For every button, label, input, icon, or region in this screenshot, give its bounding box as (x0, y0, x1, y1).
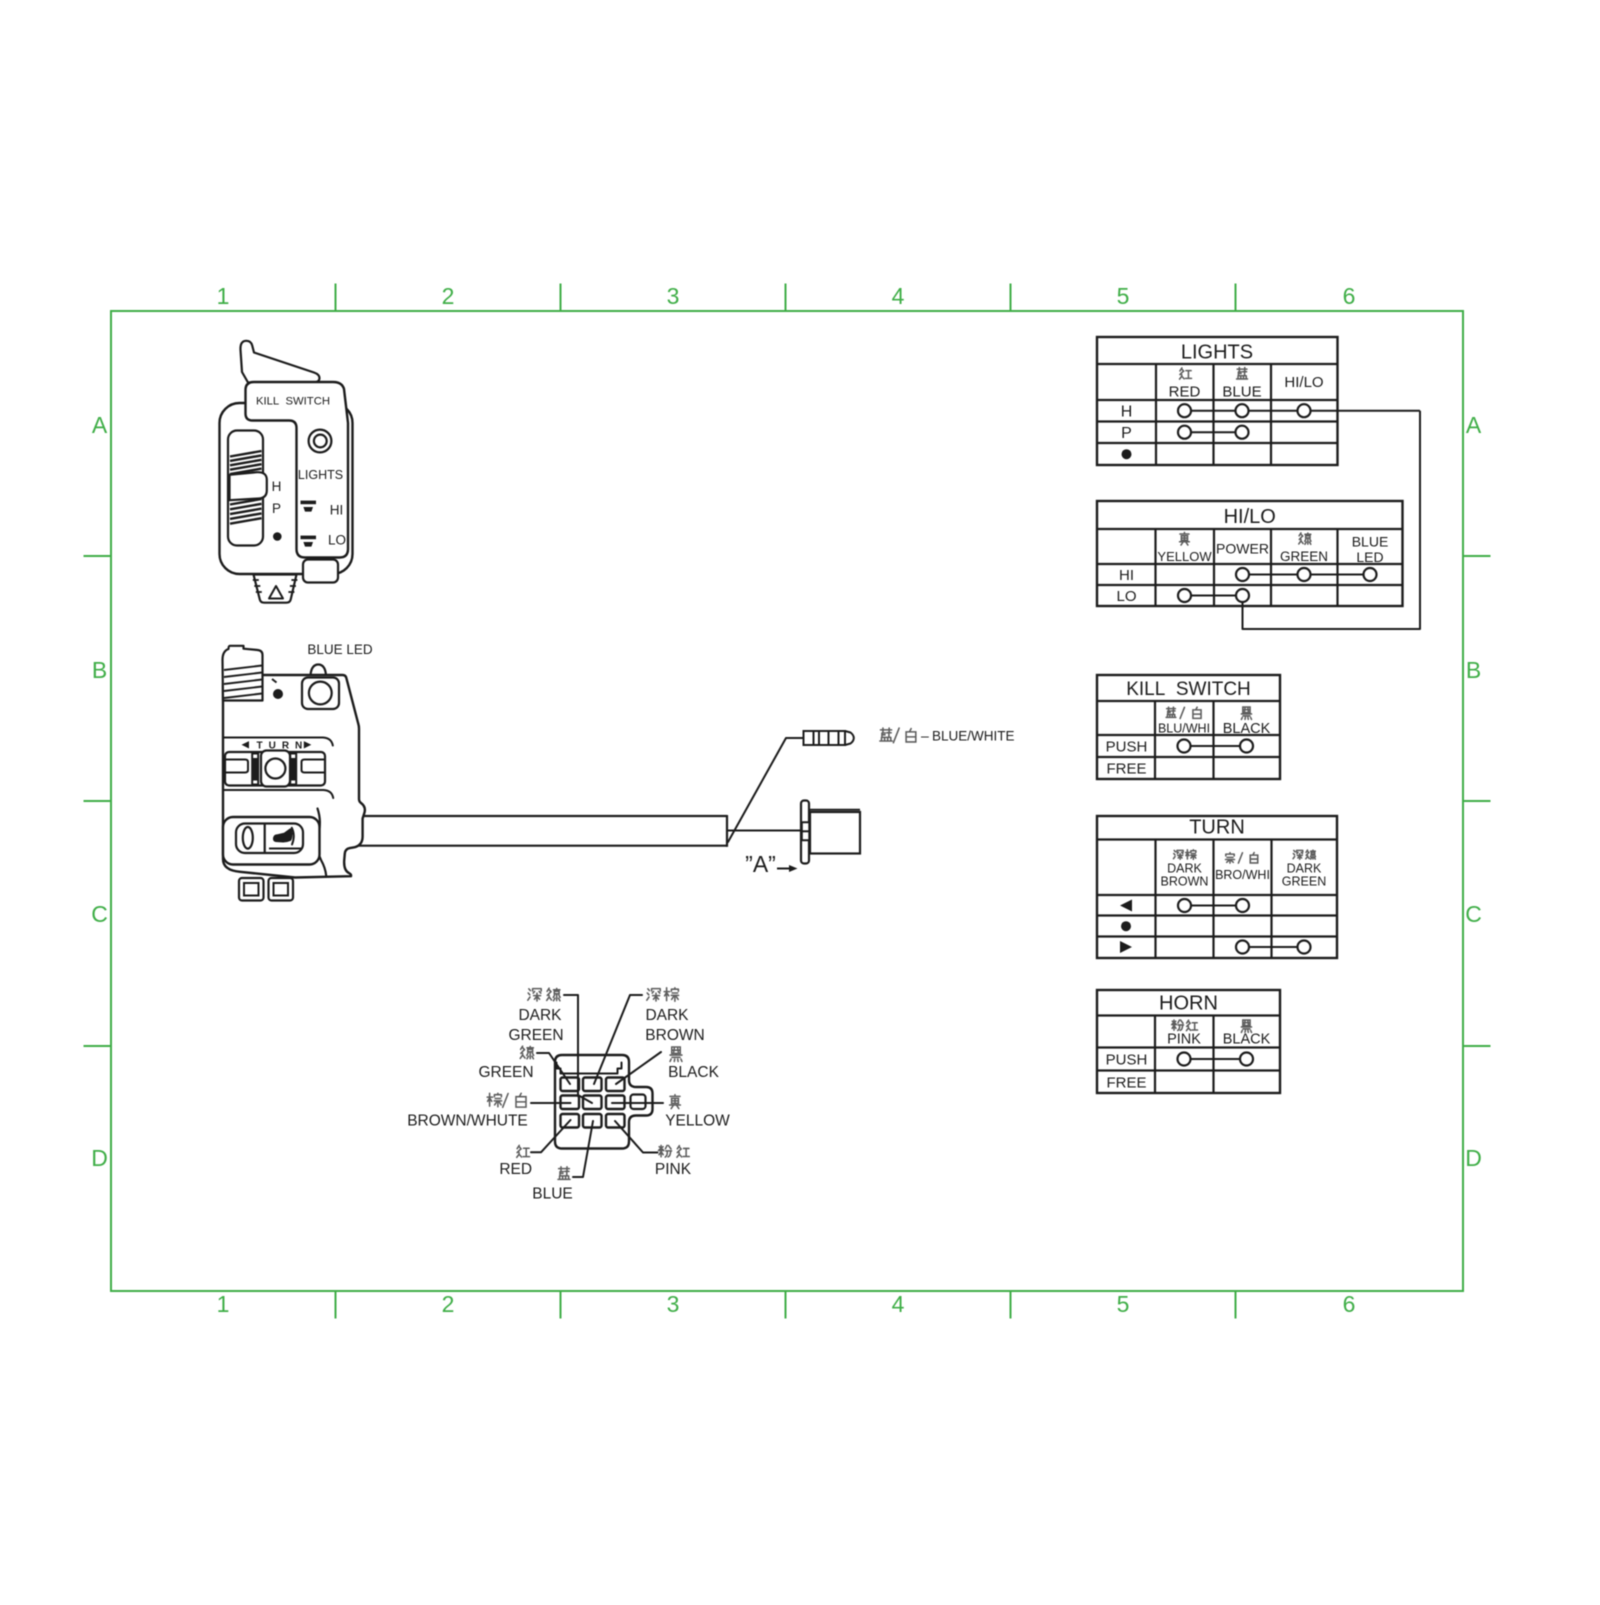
svg-text:”A”: ”A” (745, 851, 776, 877)
svg-text:BLUE: BLUE (1222, 384, 1261, 401)
svg-text:LED: LED (1356, 549, 1383, 565)
svg-text:HI/LO: HI/LO (1224, 506, 1276, 528)
svg-text:BLACK: BLACK (1223, 1032, 1271, 1048)
svg-text:B: B (1466, 657, 1481, 683)
svg-text:BLACK: BLACK (1223, 721, 1271, 737)
svg-text:FREE: FREE (1106, 1075, 1146, 1092)
svg-text:4: 4 (892, 1291, 905, 1317)
svg-text:KILL SWITCH: KILL SWITCH (1126, 679, 1251, 700)
svg-text:BLUE: BLUE (532, 1186, 573, 1203)
svg-text:BROWN: BROWN (645, 1027, 704, 1044)
svg-text:LIGHTS: LIGHTS (1181, 342, 1253, 364)
svg-text:PINK: PINK (655, 1161, 692, 1178)
svg-text:A: A (92, 412, 108, 438)
svg-text:BROWN: BROWN (1161, 875, 1209, 889)
svg-text:RED: RED (499, 1161, 532, 1178)
svg-text:PUSH: PUSH (1106, 739, 1148, 756)
svg-text:HORN: HORN (1159, 993, 1218, 1015)
svg-text:BRO/WHI: BRO/WHI (1215, 868, 1270, 882)
svg-text:TURN: TURN (1189, 817, 1245, 839)
svg-text:KILL SWITCH: KILL SWITCH (256, 396, 330, 408)
svg-text:BLUE: BLUE (1352, 534, 1389, 550)
svg-text:GREEN: GREEN (508, 1027, 563, 1044)
svg-text:BLUE LED: BLUE LED (307, 642, 373, 657)
svg-text:GREEN: GREEN (1282, 875, 1326, 889)
svg-text:B: B (92, 657, 107, 683)
svg-text:LIGHTS: LIGHTS (298, 468, 343, 482)
svg-text:H: H (272, 479, 282, 494)
svg-text:PUSH: PUSH (1106, 1052, 1148, 1069)
svg-text:YELLOW: YELLOW (665, 1113, 730, 1130)
svg-text:BROWN/WHUTE: BROWN/WHUTE (407, 1113, 528, 1130)
svg-text:5: 5 (1117, 283, 1130, 309)
svg-text:HI: HI (330, 503, 344, 518)
svg-text:FREE: FREE (1106, 761, 1146, 778)
svg-text:5: 5 (1117, 1291, 1130, 1317)
svg-text:6: 6 (1343, 283, 1356, 309)
svg-text:3: 3 (667, 1291, 680, 1317)
svg-text:GREEN: GREEN (1280, 549, 1328, 564)
svg-text:BLACK: BLACK (668, 1064, 719, 1081)
svg-text:PINK: PINK (1167, 1032, 1201, 1048)
svg-text:RED: RED (1169, 384, 1201, 401)
svg-text:BLUE/WHITE: BLUE/WHITE (932, 729, 1015, 744)
svg-text:DARK: DARK (1167, 862, 1202, 876)
svg-text:D: D (91, 1145, 108, 1171)
svg-text:1: 1 (217, 1291, 230, 1317)
svg-text:P: P (1121, 425, 1132, 442)
svg-text:2: 2 (442, 1291, 455, 1317)
svg-text:6: 6 (1343, 1291, 1356, 1317)
svg-text:C: C (1465, 901, 1482, 927)
svg-text:C: C (91, 901, 108, 927)
svg-text:DARK: DARK (645, 1007, 689, 1024)
svg-text:LO: LO (1116, 588, 1136, 605)
svg-text:2: 2 (442, 283, 455, 309)
svg-text:BLU/WHI: BLU/WHI (1158, 722, 1210, 736)
svg-text:LO: LO (328, 533, 346, 548)
svg-text:YELLOW: YELLOW (1157, 549, 1212, 564)
svg-text:DARK: DARK (1287, 862, 1322, 876)
svg-text:P: P (272, 501, 281, 516)
svg-text:–: – (921, 728, 929, 744)
svg-text:3: 3 (667, 283, 680, 309)
svg-text:DARK: DARK (518, 1007, 562, 1024)
svg-text:HI/LO: HI/LO (1284, 374, 1323, 391)
svg-text:4: 4 (892, 283, 905, 309)
svg-text:1: 1 (217, 283, 230, 309)
svg-text:GREEN: GREEN (478, 1064, 533, 1081)
svg-text:POWER: POWER (1216, 541, 1269, 557)
svg-text:A: A (1466, 412, 1482, 438)
svg-text:H: H (1121, 404, 1133, 421)
svg-text:D: D (1465, 1145, 1482, 1171)
svg-text:HI: HI (1119, 567, 1134, 584)
